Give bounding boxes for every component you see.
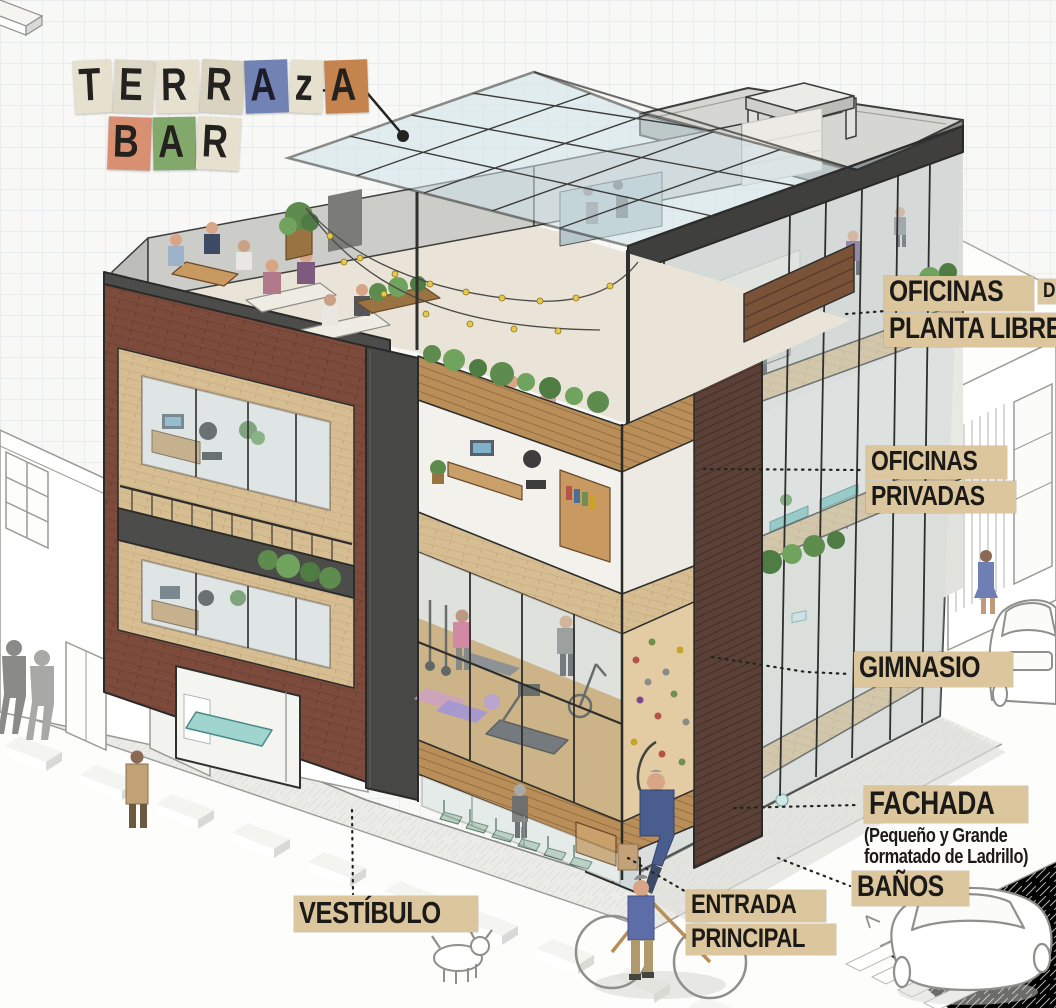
label-fachada: FACHADA (Pequeño y Grande formatado de L… <box>864 786 1056 868</box>
label-terraza-bar: TERRAzABAR <box>74 60 369 169</box>
entrada-line1: ENTRADA <box>691 891 796 919</box>
vestibulo-text: VESTÍBULO <box>299 897 441 929</box>
person <box>204 222 220 254</box>
fachada-subtitle-1: (Pequeño y Grande <box>864 826 1007 847</box>
person <box>168 234 184 266</box>
label-entrada-principal: ENTRADA PRINCIPAL <box>686 890 836 957</box>
fachada-title: FACHADA <box>869 787 994 820</box>
label-oficinas-privadas: OFICINAS PRIVADAS <box>866 446 1016 515</box>
infographic-page: { "labels": { "terraza_bar": { "rows": [… <box>0 0 1056 1008</box>
banos-text: BAÑOS <box>857 872 944 903</box>
brick-column <box>694 322 762 868</box>
label-vestibulo: VESTÍBULO <box>294 896 478 934</box>
corner-pillar <box>366 346 418 800</box>
illustration-stage: TERRAzABAR OFICINASDE PLANTA LIBRE OFICI… <box>0 0 1056 1008</box>
label-gimnasio: GIMNASIO <box>854 652 1013 689</box>
entrada-line2: PRINCIPAL <box>691 925 805 953</box>
planta-line1-suffix: DE <box>1043 280 1056 301</box>
planta-line2: PLANTA LIBRE <box>889 314 1056 345</box>
label-oficinas-planta-libre: OFICINASDE PLANTA LIBRE <box>884 276 1056 349</box>
person <box>322 294 338 326</box>
person <box>263 260 281 295</box>
privadas-line2: PRIVADAS <box>871 482 985 511</box>
fachada-subtitle-2: formatado de Ladrillo) <box>864 847 1028 868</box>
planta-line1: OFICINAS <box>889 277 1003 308</box>
label-banos: BAÑOS <box>852 871 969 908</box>
gate <box>1014 384 1052 584</box>
person <box>236 240 252 270</box>
gimnasio-text: GIMNASIO <box>859 653 980 684</box>
privadas-line1: OFICINAS <box>871 447 977 476</box>
